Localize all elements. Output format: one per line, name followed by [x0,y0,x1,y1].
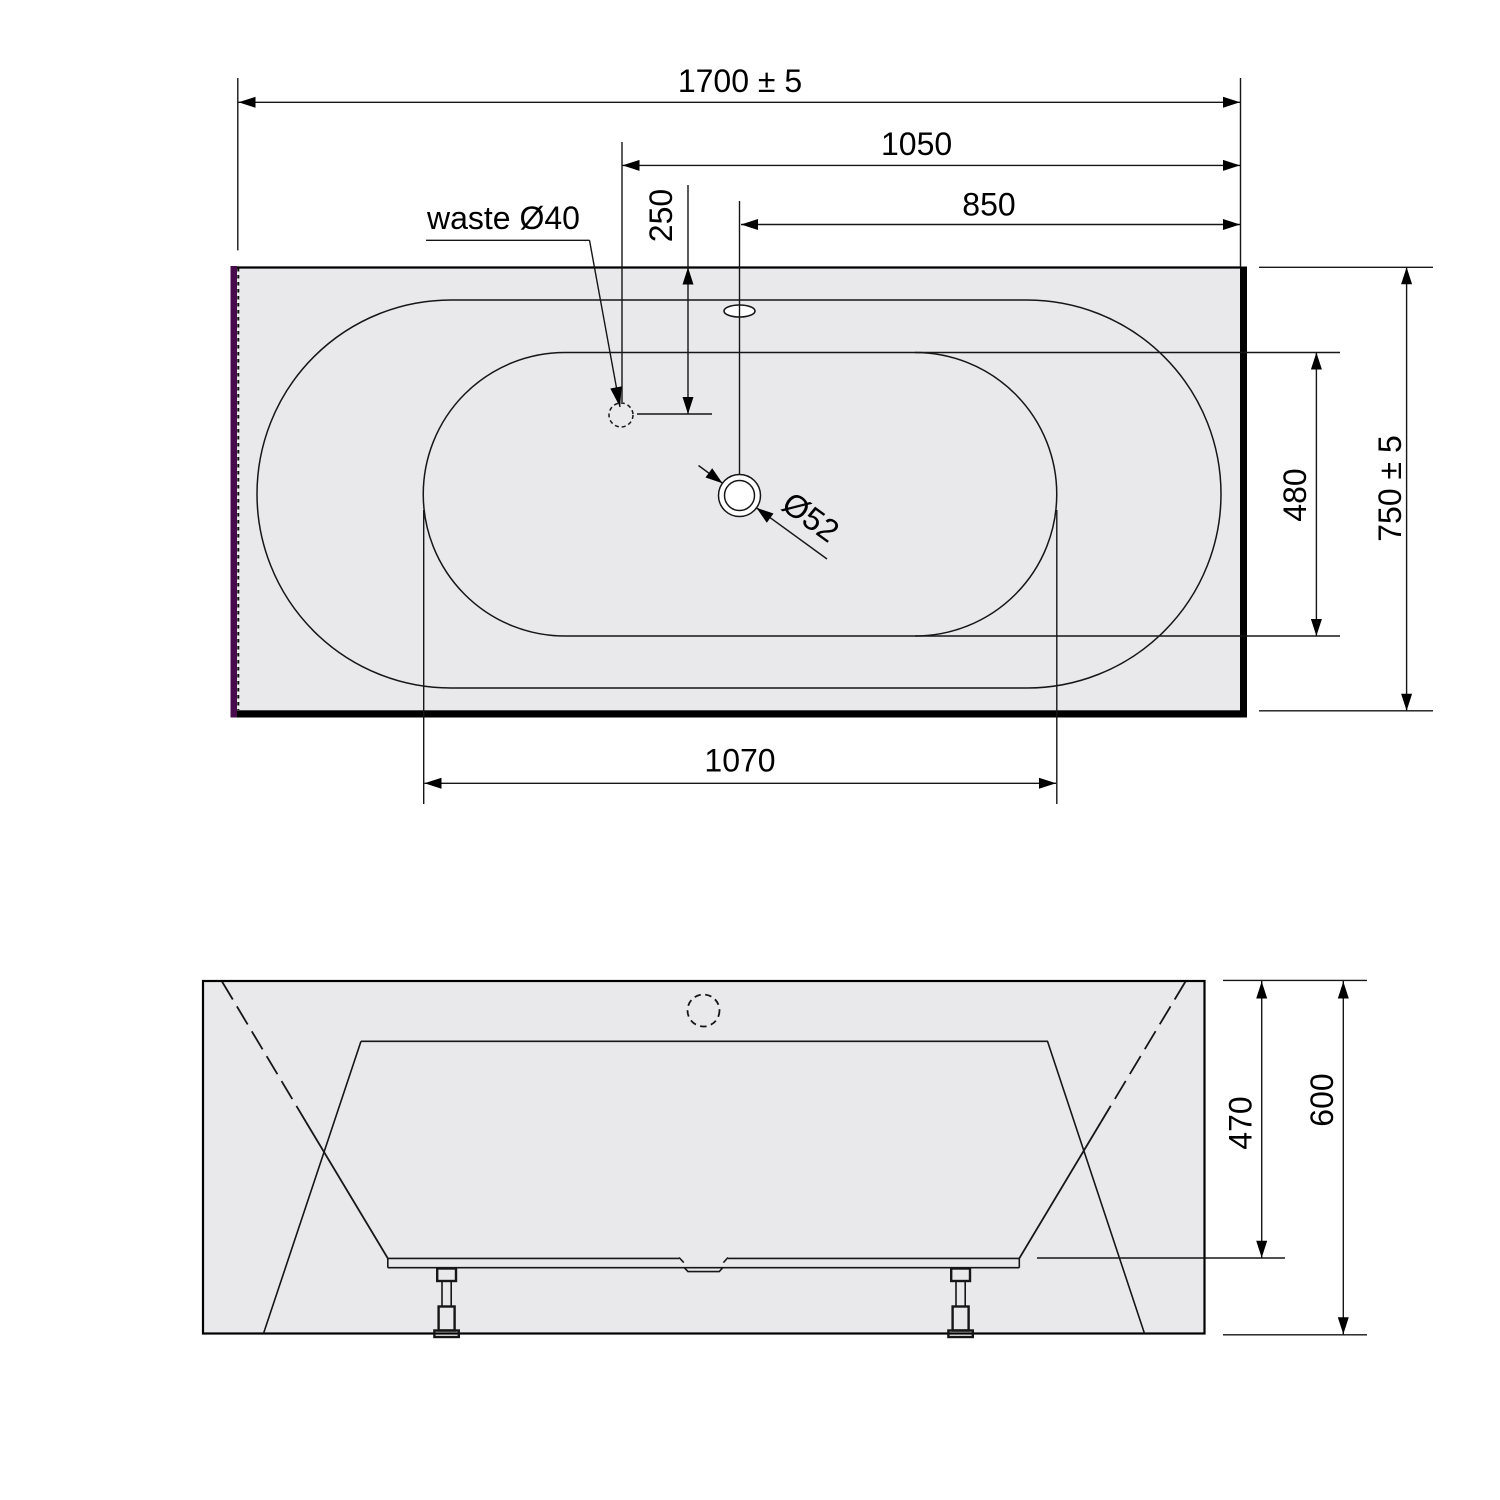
svg-text:1700 ± 5: 1700 ± 5 [678,63,802,99]
svg-text:850: 850 [962,187,1015,223]
svg-text:250: 250 [643,189,679,242]
svg-text:470: 470 [1223,1096,1259,1149]
svg-text:waste Ø40: waste Ø40 [426,200,580,236]
svg-text:750 ± 5: 750 ± 5 [1372,435,1408,542]
svg-text:600: 600 [1304,1073,1340,1126]
svg-text:480: 480 [1277,468,1313,521]
svg-text:1050: 1050 [881,126,952,162]
svg-text:1070: 1070 [704,743,775,779]
